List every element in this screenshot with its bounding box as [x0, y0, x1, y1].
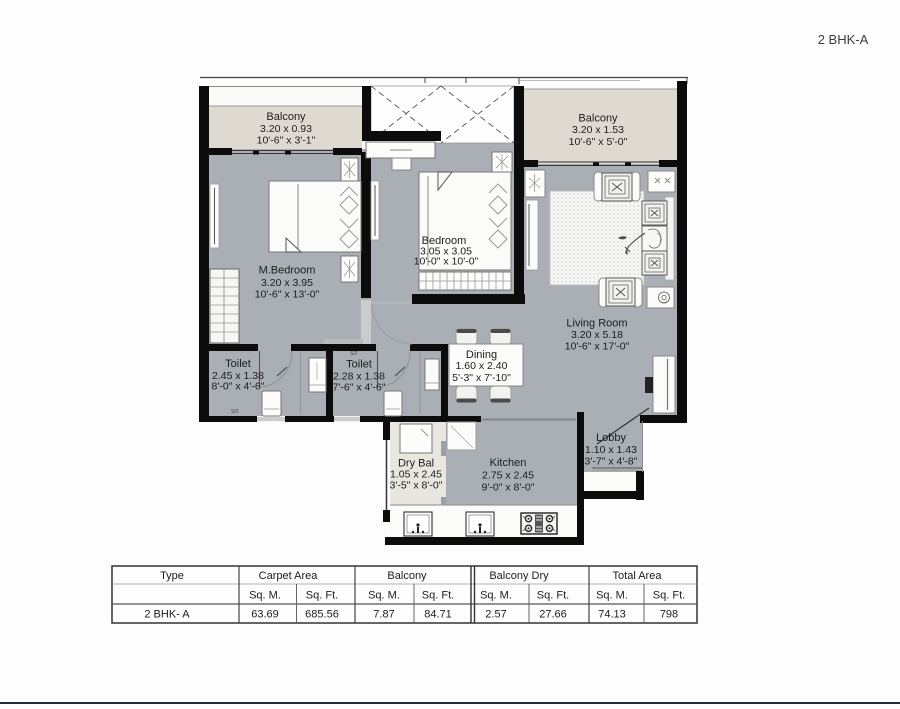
svg-text:S/2: S/2 — [350, 351, 358, 357]
svg-text:1.10 x 1.43: 1.10 x 1.43 — [585, 444, 637, 456]
svg-text:9'-0" x 8'-0": 9'-0" x 8'-0" — [482, 481, 535, 493]
svg-text:7'-6" x 4'-6": 7'-6" x 4'-6" — [333, 381, 386, 393]
svg-text:Sq. Ft.: Sq. Ft. — [537, 590, 569, 602]
svg-text:Sq. Ft.: Sq. Ft. — [653, 590, 685, 602]
svg-text:Carpet Area: Carpet Area — [259, 570, 319, 582]
svg-text:Sq. Ft.: Sq. Ft. — [306, 590, 338, 602]
svg-text:Sq. M.: Sq. M. — [480, 590, 512, 602]
svg-text:685.56: 685.56 — [305, 609, 339, 621]
svg-text:2 BHK- A: 2 BHK- A — [144, 609, 190, 621]
svg-text:27.66: 27.66 — [539, 609, 567, 621]
svg-text:10'-6" x 13'-0": 10'-6" x 13'-0" — [255, 288, 320, 300]
svg-text:3'-7" x 4'-8": 3'-7" x 4'-8" — [585, 455, 638, 467]
svg-text:3.20 x 1.53: 3.20 x 1.53 — [572, 124, 624, 136]
svg-text:S/2: S/2 — [231, 409, 239, 415]
svg-text:3'-5" x 8'-0": 3'-5" x 8'-0" — [390, 479, 443, 491]
svg-text:3.20 x 0.93: 3.20 x 0.93 — [260, 123, 312, 135]
svg-text:Sq. M.: Sq. M. — [249, 590, 281, 602]
svg-text:Balcony: Balcony — [578, 113, 618, 125]
svg-text:10'-0" x 10'-0": 10'-0" x 10'-0" — [414, 255, 479, 267]
svg-text:63.69: 63.69 — [251, 609, 279, 621]
svg-text:2.57: 2.57 — [485, 609, 506, 621]
svg-text:1.60 x 2.40: 1.60 x 2.40 — [456, 360, 508, 372]
svg-text:Living Room: Living Room — [566, 317, 627, 329]
svg-text:Total Area: Total Area — [613, 570, 663, 582]
svg-text:Kitchen: Kitchen — [490, 457, 527, 469]
svg-text:8'-0" x 4'-6": 8'-0" x 4'-6" — [212, 380, 265, 392]
svg-text:3.20 x 3.95: 3.20 x 3.95 — [261, 277, 313, 289]
svg-text:Balcony Dry: Balcony Dry — [489, 570, 549, 582]
svg-text:Lobby: Lobby — [596, 432, 626, 444]
svg-text:10'-6" x 3'-1": 10'-6" x 3'-1" — [257, 135, 316, 147]
svg-text:Sq. M.: Sq. M. — [368, 590, 400, 602]
svg-text:10'-6" x 17'-0": 10'-6" x 17'-0" — [565, 340, 630, 352]
svg-text:74.13: 74.13 — [598, 609, 626, 621]
svg-text:2 BHK-A: 2 BHK-A — [818, 32, 869, 47]
svg-text:Toilet: Toilet — [225, 358, 251, 370]
svg-text:7.87: 7.87 — [373, 609, 394, 621]
svg-text:Dining: Dining — [466, 349, 497, 361]
svg-text:2.75 x 2.45: 2.75 x 2.45 — [482, 469, 534, 481]
svg-text:Balcony: Balcony — [387, 570, 427, 582]
svg-text:3.20 x 5.18: 3.20 x 5.18 — [571, 329, 623, 341]
svg-text:84.71: 84.71 — [424, 609, 452, 621]
svg-text:Balcony: Balcony — [266, 111, 306, 123]
svg-text:5'-3" x 7'-10": 5'-3" x 7'-10" — [452, 372, 511, 384]
svg-text:10'-6" x 5'-0": 10'-6" x 5'-0" — [569, 136, 628, 148]
svg-text:Type: Type — [160, 570, 184, 582]
svg-text:798: 798 — [660, 609, 678, 621]
svg-text:M.Bedroom: M.Bedroom — [259, 264, 316, 276]
svg-text:Toilet: Toilet — [346, 358, 372, 370]
svg-text:Sq. M.: Sq. M. — [596, 590, 628, 602]
svg-text:Sq. Ft.: Sq. Ft. — [422, 590, 454, 602]
